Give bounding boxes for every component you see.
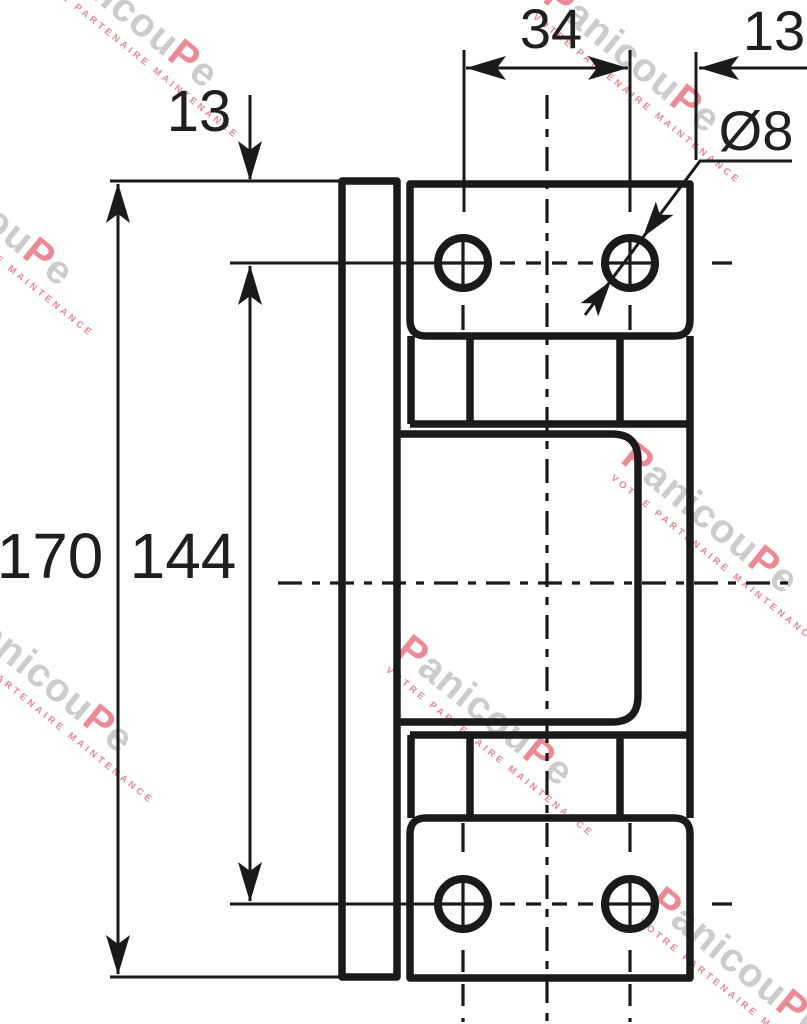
dim-diameter-label: Ø8 xyxy=(719,99,794,162)
dim-34-label: 34 xyxy=(520,0,582,60)
hinge-cutout xyxy=(397,434,638,722)
dimension-lines xyxy=(110,50,807,977)
top-flange xyxy=(410,184,690,336)
plate-edge-view xyxy=(342,181,397,977)
centerlines xyxy=(278,95,792,1022)
dim-170-label: 170 xyxy=(0,520,103,592)
technical-drawing-page: PanicouPe VOTRE PARTENAIRE MAINTENANCE P… xyxy=(0,0,807,1024)
dim-144-label: 144 xyxy=(130,520,237,592)
dim-13-right-label: 13 xyxy=(743,0,805,62)
part-outline xyxy=(342,181,690,978)
bottom-flange xyxy=(410,818,690,978)
dim-13-top-label: 13 xyxy=(167,79,232,144)
dimension-labels: 34 13 Ø8 13 170 144 xyxy=(0,0,805,592)
hinge-drawing: 34 13 Ø8 13 170 144 xyxy=(0,0,807,1024)
dimension-arrows xyxy=(106,56,739,975)
